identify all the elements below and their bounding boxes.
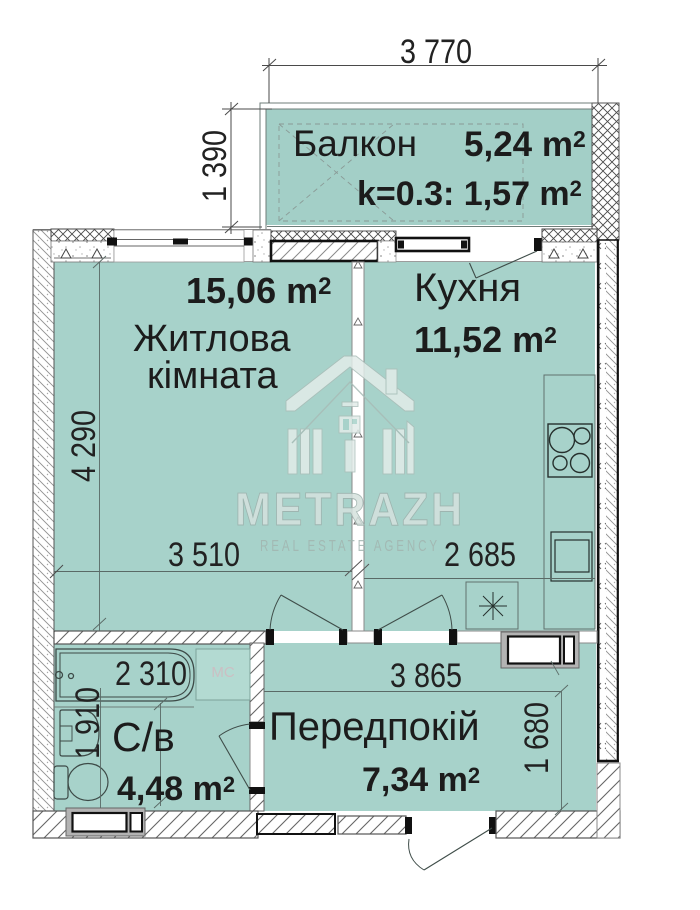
svg-text:11,52 m2: 11,52 m2	[414, 319, 557, 360]
svg-text:кімната: кімната	[147, 355, 278, 397]
svg-text:1 390: 1 390	[196, 130, 234, 202]
svg-text:3 510: 3 510	[168, 536, 240, 574]
svg-text:15,06 m2: 15,06 m2	[186, 270, 331, 311]
svg-text:k=0.3: 1,57 m2: k=0.3: 1,57 m2	[357, 175, 582, 213]
svg-text:7,34 m2: 7,34 m2	[362, 761, 480, 799]
svg-text:Передпокій: Передпокій	[269, 705, 480, 749]
svg-text:3 865: 3 865	[390, 657, 462, 695]
svg-text:5,24 m2: 5,24 m2	[464, 125, 586, 164]
svg-text:1 680: 1 680	[518, 702, 556, 774]
svg-text:4,48 m2: 4,48 m2	[117, 770, 235, 808]
svg-text:4 290: 4 290	[65, 410, 103, 482]
svg-text:Балкон: Балкон	[293, 123, 417, 164]
svg-text:С/в: С/в	[112, 714, 175, 760]
svg-text:Кухня: Кухня	[414, 266, 521, 310]
svg-text:2 685: 2 685	[444, 536, 516, 574]
svg-text:МС: МС	[211, 664, 234, 681]
svg-text:1 910: 1 910	[69, 687, 107, 759]
svg-text:REAL ESTATE AGENCY: REAL ESTATE AGENCY	[260, 538, 440, 555]
svg-text:Житлова: Житлова	[133, 318, 291, 360]
svg-text:METRAZH: METRAZH	[235, 483, 465, 535]
svg-text:3 770: 3 770	[400, 33, 472, 71]
svg-text:2 310: 2 310	[115, 655, 187, 693]
